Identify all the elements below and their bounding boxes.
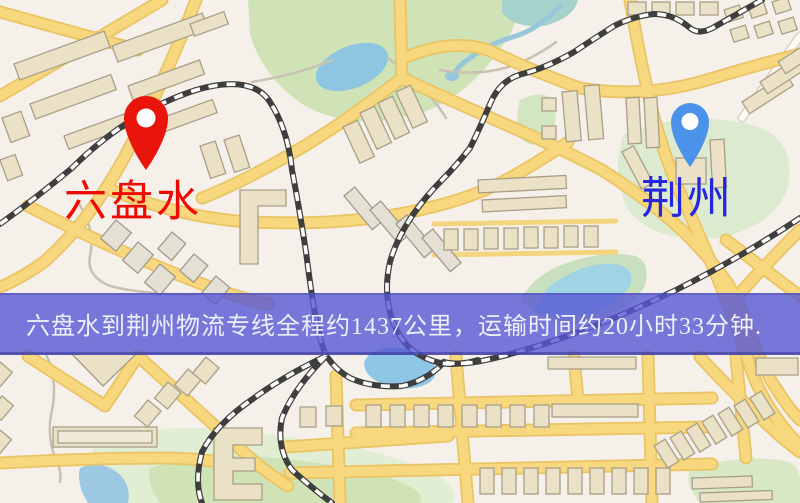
route-info-text: 六盘水到荆州物流专线全程约1437公里，运输时间约20小时33分钟. [26, 306, 762, 341]
origin-city-label: 六盘水 [64, 181, 202, 224]
route-info-banner: 六盘水到荆州物流专线全程约1437公里，运输时间约20小时33分钟. [0, 293, 800, 355]
destination-city-label: 荆州 [641, 177, 733, 221]
origin-pin-icon[interactable] [116, 88, 176, 172]
destination-pin-icon[interactable] [664, 95, 716, 169]
logistics-route-map: 六盘水 荆州 六盘水到荆州物流专线全程约1437公里，运输时间约20小时33分钟… [0, 0, 800, 503]
map-canvas [0, 0, 800, 503]
